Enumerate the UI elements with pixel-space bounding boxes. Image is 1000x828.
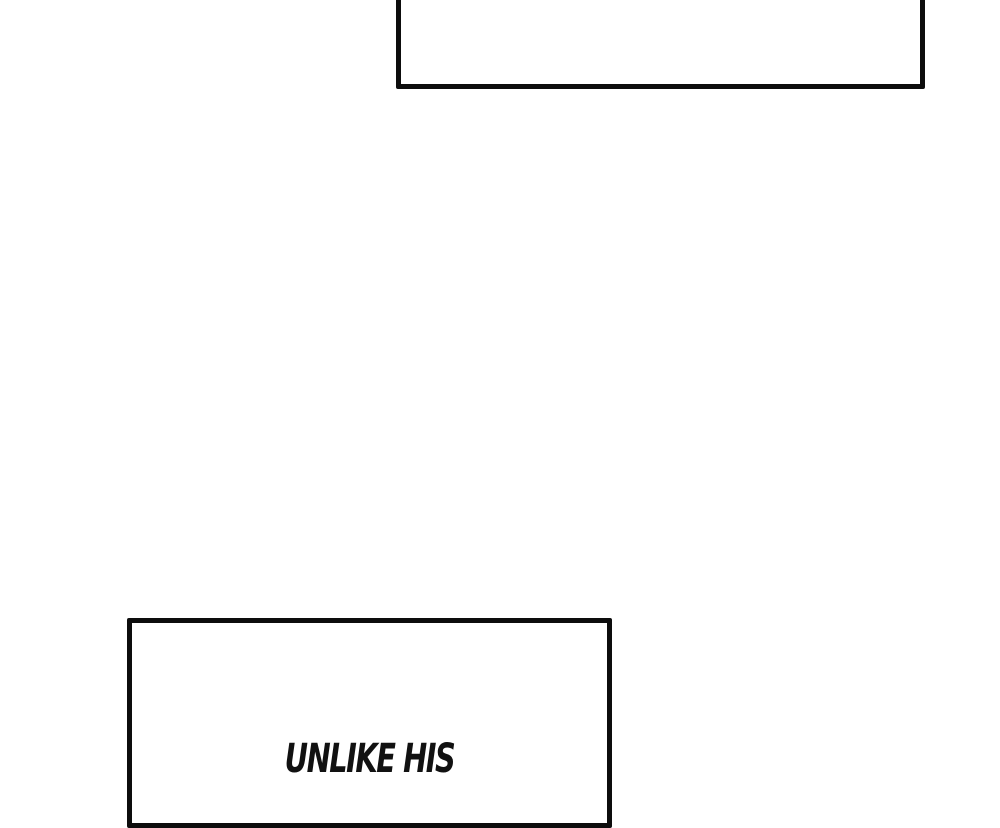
caption-text: UNLIKE HIS — [199, 739, 541, 779]
caption-box-bottom: UNLIKE HIS — [127, 618, 612, 828]
caption-box-top — [396, 0, 925, 89]
comic-page: UNLIKE HIS — [0, 0, 1000, 782]
